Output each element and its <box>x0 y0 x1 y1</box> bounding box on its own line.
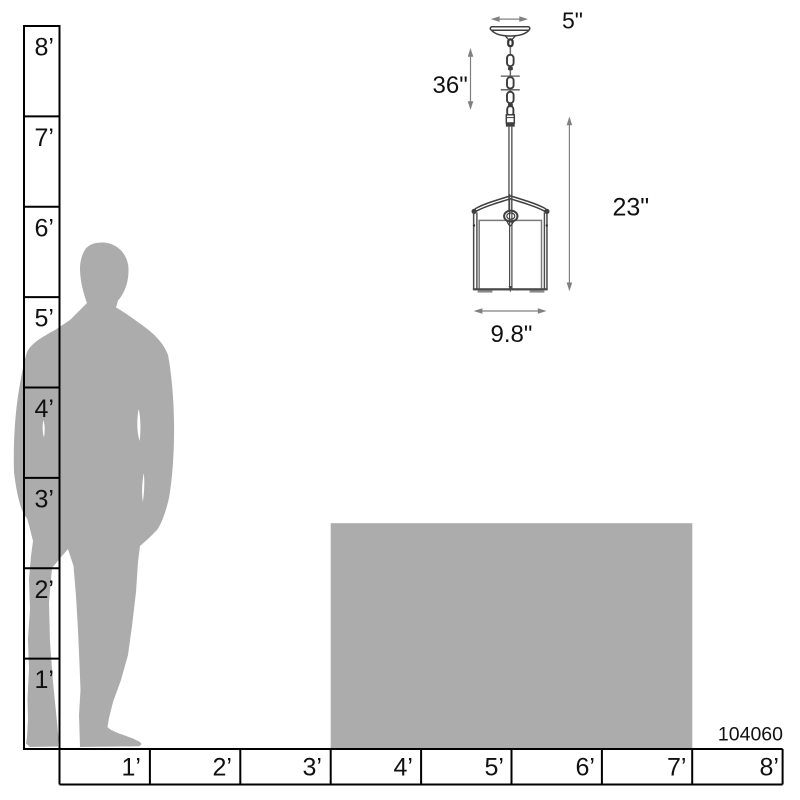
svg-text:1’: 1’ <box>122 754 141 782</box>
svg-text:5’: 5’ <box>35 305 54 333</box>
svg-text:104060: 104060 <box>718 724 783 746</box>
svg-text:2’: 2’ <box>213 754 232 782</box>
svg-text:3’: 3’ <box>303 754 322 782</box>
svg-text:5": 5" <box>562 8 583 34</box>
svg-text:36": 36" <box>433 72 468 99</box>
svg-text:7’: 7’ <box>35 124 54 152</box>
svg-text:8’: 8’ <box>760 754 779 782</box>
svg-text:3’: 3’ <box>35 485 54 513</box>
svg-text:6’: 6’ <box>576 754 595 782</box>
svg-text:8’: 8’ <box>35 34 54 62</box>
svg-text:4’: 4’ <box>35 395 54 423</box>
svg-text:23": 23" <box>613 194 650 222</box>
svg-text:1’: 1’ <box>35 666 54 694</box>
svg-text:2’: 2’ <box>35 576 54 604</box>
svg-text:4’: 4’ <box>394 754 413 782</box>
svg-text:7’: 7’ <box>667 754 686 782</box>
svg-text:6’: 6’ <box>35 214 54 242</box>
svg-text:5’: 5’ <box>485 754 504 782</box>
svg-text:9.8": 9.8" <box>491 321 533 348</box>
